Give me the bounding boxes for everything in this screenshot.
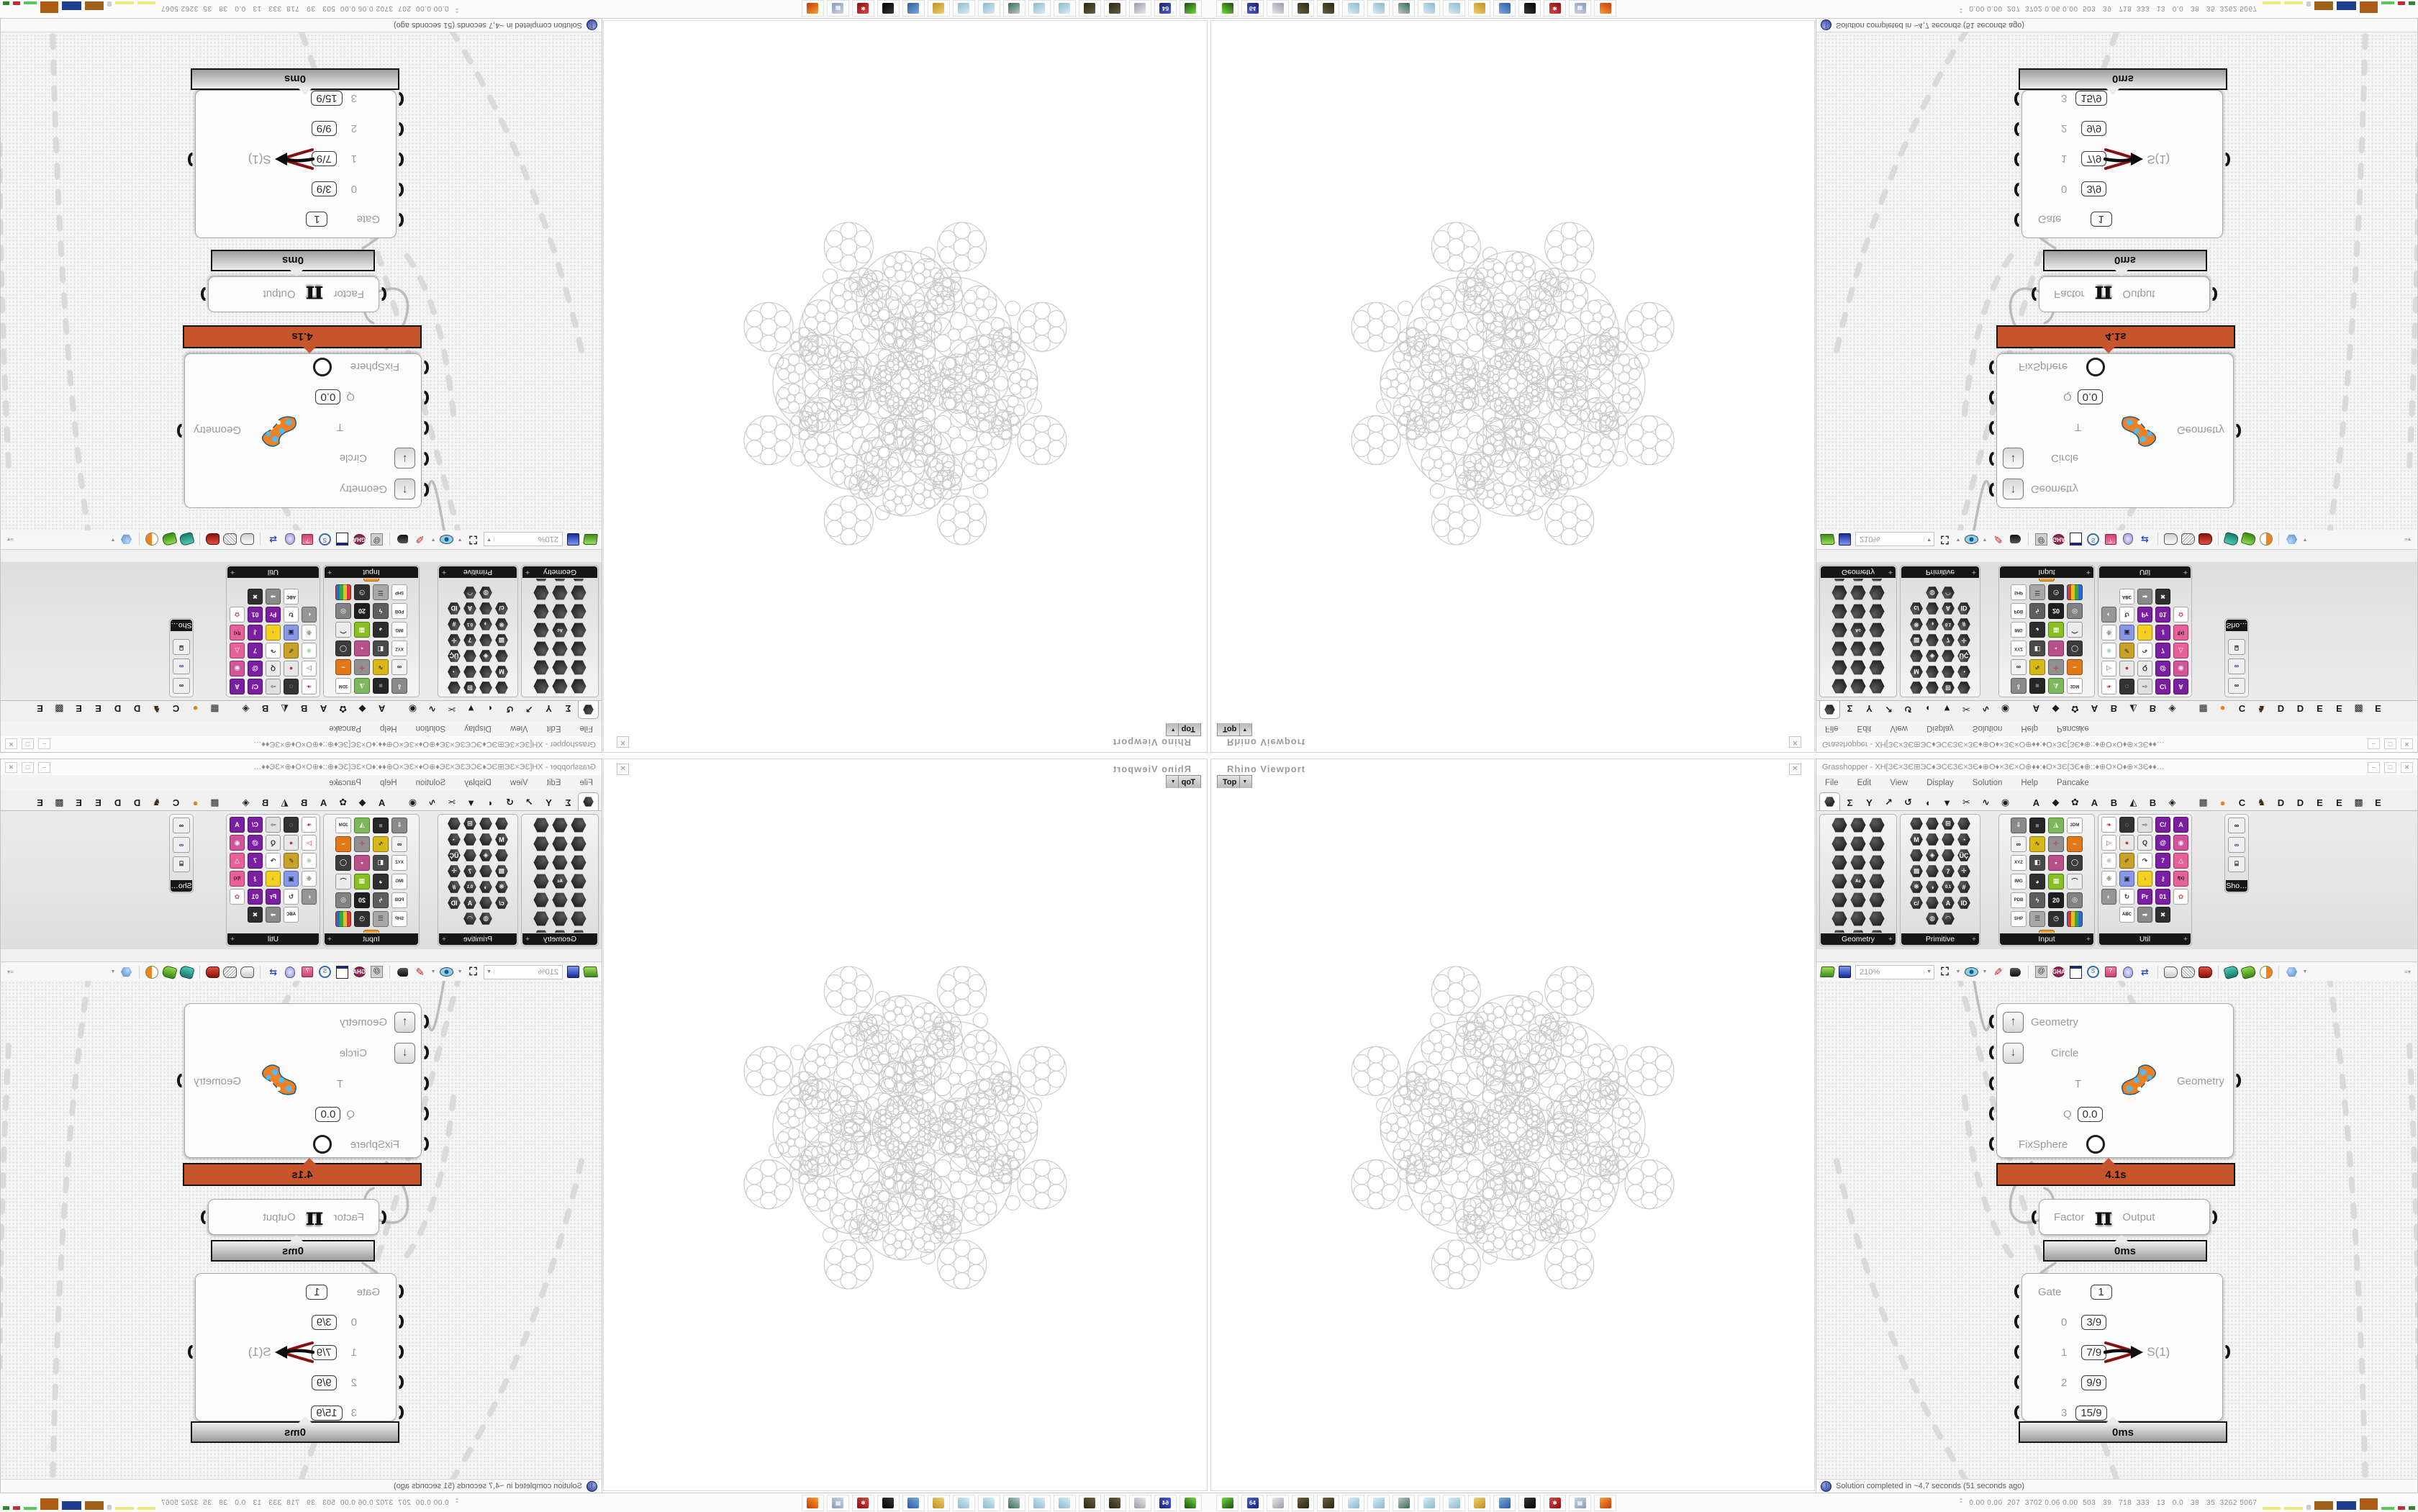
palette-icon[interactable]: ϟ	[372, 602, 390, 620]
palette-icon[interactable]	[1831, 835, 1849, 853]
chevron-down-icon[interactable]: ▼	[484, 969, 494, 974]
gh-category-tab[interactable]: ✿	[333, 701, 353, 717]
palette-icon[interactable]: ÜÇ	[447, 848, 462, 863]
palette-icon[interactable]: ✛	[447, 864, 462, 879]
chevron-down-icon[interactable]: ▼	[1955, 533, 1961, 546]
palette-icon[interactable]: •	[2047, 640, 2065, 658]
pi-node[interactable]: Factor π Output	[2039, 1199, 2210, 1235]
palette-icon[interactable]: ▷	[2101, 834, 2118, 851]
camera-button[interactable]	[396, 965, 409, 979]
taskbar-app-icon[interactable]	[1003, 1495, 1025, 1511]
gh-category-tab[interactable]: ◭	[275, 795, 294, 810]
palette-icon[interactable]: ✛	[447, 633, 462, 648]
stream-gate-node[interactable]: Gate 1 0 3/9 1 7/9	[2021, 90, 2223, 238]
chevron-down-icon[interactable]: ▼	[1169, 723, 1179, 735]
gate-input-port[interactable]	[2014, 213, 2023, 227]
input-port-geometry[interactable]	[1989, 483, 1998, 497]
palette-icon[interactable]: ■	[372, 677, 390, 695]
viewport-canvas[interactable]	[604, 22, 1206, 723]
gh-category-tab[interactable]: E	[89, 701, 108, 717]
palette-icon[interactable]	[551, 854, 569, 872]
gate-input-port[interactable]	[2014, 1285, 2023, 1298]
gh-category-tab[interactable]: ●	[186, 701, 205, 717]
up-arrow-button[interactable]: ↑	[2003, 1012, 2024, 1033]
palette-icon[interactable]: ◎	[335, 891, 353, 909]
palette-icon[interactable]	[570, 621, 588, 639]
palette-icon[interactable]: ▦	[353, 872, 371, 890]
palette-icon[interactable]: ϟ	[2029, 602, 2047, 620]
palette-icon[interactable]	[551, 579, 569, 583]
palette-icon[interactable]	[570, 835, 588, 853]
palette-icon[interactable]	[447, 816, 462, 831]
palette-icon[interactable]: 20	[353, 891, 371, 909]
taskbar-app-icon[interactable]: 64	[1241, 0, 1264, 17]
palette-icon[interactable]: f(x)	[229, 870, 246, 887]
palette-icon[interactable]: ◧	[372, 854, 390, 872]
palette-icon[interactable]: M	[1909, 832, 1924, 847]
sketch-pen-button[interactable]: ✎	[1991, 533, 2005, 546]
palette-icon[interactable]: 0.1	[1941, 879, 1956, 895]
output-port-geometry[interactable]	[177, 424, 186, 438]
palette-icon[interactable]: ⊞	[463, 680, 478, 695]
menu-item-file[interactable]: File	[1825, 725, 1839, 733]
gate-input-port[interactable]	[2014, 122, 2023, 136]
gh-category-tab[interactable]: ◭	[2124, 701, 2143, 717]
display-shaded-red-button[interactable]	[206, 533, 219, 546]
palette-icon[interactable]: •	[353, 854, 371, 872]
input-port-t[interactable]	[420, 1077, 429, 1090]
chevron-down-icon[interactable]: ▼	[110, 533, 116, 546]
zoom-extents-button[interactable]: ⛶	[466, 965, 480, 979]
gh-category-tab[interactable]: D	[2291, 795, 2310, 810]
taskbar-app-icon[interactable]	[1493, 0, 1516, 17]
gh-category-tab[interactable]: Y	[1860, 795, 1879, 810]
minimize-button[interactable]: –	[2368, 762, 2380, 773]
taskbar-app-icon[interactable]: ✱	[1544, 1495, 1566, 1511]
display-wireframe-button[interactable]	[2181, 965, 2195, 979]
palette-icon[interactable]: M	[1909, 664, 1924, 679]
palette-icon[interactable]: 7	[2155, 852, 2172, 869]
palette-icon[interactable]: C/	[2155, 816, 2172, 833]
hints-bulb-button[interactable]	[2121, 533, 2134, 546]
menu-item-display[interactable]: Display	[464, 779, 492, 787]
minimize-button[interactable]: –	[38, 762, 50, 773]
taskbar-app-icon[interactable]	[802, 1495, 824, 1511]
collapse-toolbar-icon[interactable]: ≡▾	[4, 533, 17, 546]
stream-gate-node[interactable]: Gate 1 0 3/9 1 7/9	[2021, 1273, 2223, 1421]
palette-icon[interactable]: ▩	[494, 864, 510, 879]
new-window-button[interactable]	[2069, 965, 2083, 979]
gh-category-tab[interactable]: ◈	[2163, 701, 2182, 717]
gh-canvas[interactable]: ↑ Geometry ↓ Circle T Q	[1816, 981, 2417, 1480]
find-component-button[interactable]: S	[2086, 533, 2100, 546]
input-port-fixsphere[interactable]	[1989, 1137, 1998, 1151]
palette-icon[interactable]: ◑	[479, 617, 494, 632]
gh-category-tab[interactable]: D	[2291, 701, 2310, 717]
palette-icon[interactable]: A	[463, 601, 478, 616]
palette-icon[interactable]: 7	[2155, 642, 2172, 659]
kangaroo-solver-node[interactable]: ↑ Geometry ↓ Circle T Q	[1996, 1003, 2234, 1158]
gh-category-tab[interactable]: Σ	[1840, 701, 1860, 717]
gh-category-tab[interactable]: E	[30, 795, 50, 810]
gh-category-tab[interactable]	[578, 701, 599, 719]
palette-icon[interactable]	[1925, 816, 1940, 831]
sketch-pen-button[interactable]: ✎	[413, 533, 427, 546]
palette-icon[interactable]: ᴬᶜ	[551, 872, 569, 890]
taskbar-app-icon[interactable]: ▦	[827, 0, 849, 17]
palette-icon[interactable]: f(x)	[2173, 870, 2190, 887]
zoom-extents-button[interactable]: ⛶	[1938, 965, 1952, 979]
gate-input-port[interactable]	[2014, 1315, 2023, 1328]
gh-category-tab[interactable]: ●	[2213, 795, 2232, 810]
palette-icon[interactable]: XYZ	[2010, 854, 2028, 872]
palette-icon[interactable]: ✖	[247, 588, 264, 605]
collapse-toolbar-icon[interactable]: ≡▾	[2401, 965, 2414, 979]
gate-value-box[interactable]: 3/9	[2081, 1315, 2106, 1330]
gh-category-tab[interactable]: ▼	[1937, 795, 1957, 810]
collapse-toolbar-icon[interactable]: ≡▾	[4, 965, 17, 979]
taskbar-app-icon[interactable]: 64	[1154, 1495, 1177, 1511]
palette-icon[interactable]	[533, 658, 551, 676]
gh-category-tab[interactable]: ∿	[1976, 701, 1996, 717]
palette-icon[interactable]: ◐	[2101, 606, 2118, 623]
palette-icon[interactable]	[1941, 848, 1956, 863]
display-green-button[interactable]	[2242, 965, 2255, 979]
display-green-button[interactable]	[2242, 533, 2255, 546]
palette-icon[interactable]	[533, 816, 551, 834]
gh-category-tab[interactable]: Y	[539, 795, 558, 810]
gate-output-port[interactable]	[188, 1345, 196, 1359]
gh-category-tab[interactable]: ▩	[50, 795, 69, 810]
palette-icon[interactable]	[1831, 584, 1849, 602]
palette-icon[interactable]: A	[1941, 601, 1956, 616]
palette-icon[interactable]: 7	[463, 864, 478, 879]
palette-icon[interactable]: ◧	[372, 640, 390, 658]
palette-icon[interactable]	[533, 910, 551, 928]
palette-icon[interactable]: ■	[2029, 816, 2047, 834]
palette-icon[interactable]	[570, 910, 588, 928]
taskbar-app-icon[interactable]	[802, 0, 824, 17]
palette-icon[interactable]: ABC	[283, 588, 300, 605]
palette-icon[interactable]: ✿	[229, 606, 246, 623]
gate-value-box[interactable]: 9/9	[312, 1375, 337, 1390]
gh-category-tab[interactable]: E	[2329, 701, 2349, 717]
gh-category-tab[interactable]: ▩	[2349, 795, 2368, 810]
hints-bulb-button[interactable]	[2121, 965, 2134, 979]
open-file-button[interactable]	[1821, 533, 1834, 546]
palette-icon[interactable]	[533, 640, 551, 658]
palette-icon[interactable]: ⚛	[2101, 642, 2118, 659]
palette-icon[interactable]	[551, 602, 569, 620]
palette-icon[interactable]: ↷	[2137, 852, 2154, 869]
gate-output-port[interactable]	[2222, 153, 2230, 166]
gh-category-tab[interactable]	[1819, 701, 1840, 719]
gh-category-tab[interactable]: C	[2232, 795, 2252, 810]
palette-icon[interactable]: ❋	[1909, 617, 1924, 632]
gh-category-tab[interactable]: ♞	[147, 795, 166, 810]
taskbar-app-icon[interactable]: ✱	[852, 1495, 874, 1511]
palette-icon[interactable]: ∿	[372, 658, 390, 676]
palette-icon[interactable]: @	[247, 660, 264, 677]
menu-item-display[interactable]: Display	[1926, 725, 1954, 733]
chevron-down-icon[interactable]: ▼	[2302, 965, 2308, 979]
palette-icon[interactable]: ➡	[265, 588, 282, 605]
gate-value-box[interactable]: 9/9	[2081, 122, 2106, 137]
palette-icon[interactable]: ➡	[2137, 906, 2154, 923]
palette-icon[interactable]: ⌸	[172, 638, 191, 656]
new-window-button[interactable]	[335, 533, 349, 546]
palette-icon[interactable]: C/	[247, 678, 264, 695]
palette-icon[interactable]	[1909, 680, 1924, 695]
palette-icon[interactable]	[551, 584, 569, 602]
pi-output-port[interactable]	[2209, 1210, 2217, 1224]
palette-icon[interactable]: ⌒	[2066, 872, 2084, 890]
palette-icon[interactable]: ∞	[2010, 658, 2028, 676]
palette-icon[interactable]: ⇩	[391, 816, 409, 834]
gh-category-tab[interactable]: D	[127, 795, 147, 810]
taskbar-app-icon[interactable]	[1104, 0, 1126, 17]
gh-category-tab[interactable]: ◭	[275, 701, 294, 717]
palette-icon[interactable]: ~	[2066, 835, 2084, 853]
palette-icon[interactable]: ▣	[283, 870, 300, 887]
palette-icon[interactable]: 20	[353, 602, 371, 620]
gate-value-box[interactable]: 3/9	[312, 1315, 337, 1330]
chevron-down-icon[interactable]: ▼	[110, 965, 116, 979]
palette-icon[interactable]	[551, 910, 569, 928]
palette-icon[interactable]: ◖	[2137, 870, 2154, 887]
taskbar-app-icon[interactable]	[1028, 1495, 1051, 1511]
minimize-button[interactable]: –	[2368, 738, 2380, 749]
viewport-canvas[interactable]	[604, 788, 1206, 1490]
palette-icon[interactable]	[570, 872, 588, 890]
palette-icon[interactable]	[533, 602, 551, 620]
palette-icon[interactable]: ⌒	[335, 872, 353, 890]
palette-icon[interactable]: ◠	[1941, 585, 1956, 600]
zoom-level-input[interactable]: 210%▼	[1855, 965, 1934, 979]
gh-category-tab[interactable]: A	[314, 701, 333, 717]
gate-value-box[interactable]: 15/9	[2075, 91, 2106, 107]
input-port-fixsphere[interactable]	[420, 361, 429, 374]
internet-button[interactable]: @	[370, 965, 384, 979]
palette-icon[interactable]	[1925, 864, 1940, 879]
palette-icon[interactable]: ▷	[301, 834, 318, 851]
taskbar-app-icon[interactable]: 64	[1154, 0, 1177, 17]
gha-installer-button[interactable]: GHA	[2052, 533, 2065, 546]
menu-item-help[interactable]: Help	[2021, 725, 2038, 733]
pi-node[interactable]: Factor π Output	[2039, 276, 2210, 312]
viewport-close-button[interactable]: ✕	[1789, 736, 1801, 748]
menu-item-display[interactable]: Display	[1926, 779, 1954, 787]
palette-icon[interactable]: ÜÇ	[447, 648, 462, 664]
preview-eye-button[interactable]	[440, 533, 453, 546]
palette-icon[interactable]: ⇨	[265, 678, 282, 695]
gh-category-tab[interactable]: Σ	[558, 795, 578, 810]
gh-category-tab[interactable]: ◈	[236, 795, 255, 810]
palette-icon[interactable]	[494, 680, 510, 695]
internet-button[interactable]: @	[2034, 533, 2048, 546]
palette-icon[interactable]	[1868, 835, 1886, 853]
gh-category-tab[interactable]: A	[314, 795, 333, 810]
palette-icon[interactable]: ABC	[283, 906, 300, 923]
palette-icon[interactable]: c/	[494, 601, 510, 616]
palette-icon[interactable]: ⌸	[172, 855, 191, 874]
gh-category-tab[interactable]: B	[294, 795, 314, 810]
package-manager-button[interactable]: ?	[301, 533, 314, 546]
gh-category-tab[interactable]: ♞	[2252, 701, 2271, 717]
palette-icon[interactable]	[479, 680, 494, 695]
palette-icon[interactable]: 0.1	[463, 879, 478, 895]
preview-eye-button[interactable]	[440, 965, 453, 979]
minimize-button[interactable]: –	[38, 738, 50, 749]
gh-category-tab[interactable]: E	[2368, 701, 2388, 717]
palette-icon[interactable]	[1925, 633, 1940, 648]
gate-input-port[interactable]	[395, 1375, 404, 1389]
menu-item-edit[interactable]: Edit	[1857, 779, 1872, 787]
palette-icon[interactable]: ▦	[2047, 872, 2065, 890]
palette-icon[interactable]: ✿	[2173, 888, 2190, 905]
gate-output-port[interactable]	[188, 153, 196, 166]
input-port-q[interactable]	[1989, 1107, 1998, 1121]
palette-icon[interactable]: ◷	[353, 910, 371, 928]
palette-icon[interactable]: ◔	[1957, 832, 1972, 847]
palette-icon[interactable]: △	[2173, 642, 2190, 659]
taskbar-app-icon[interactable]	[1594, 1495, 1616, 1511]
gha-installer-button[interactable]: GHA	[353, 965, 366, 979]
palette-icon[interactable]: ⚷	[2155, 624, 2172, 641]
palette-icon[interactable]: ◈	[479, 848, 494, 863]
q-value-box[interactable]: 0.0	[315, 1107, 340, 1122]
palette-icon[interactable]: ◔	[447, 664, 462, 679]
palette-icon[interactable]: ◎	[2066, 602, 2084, 620]
palette-icon[interactable]: A	[1941, 895, 1956, 910]
palette-icon[interactable]: XYZ	[391, 640, 409, 658]
palette-icon[interactable]: ⇩	[391, 677, 409, 695]
palette-icon[interactable]: f(x)	[2173, 624, 2190, 641]
gate-input-port[interactable]	[2014, 1345, 2023, 1359]
palette-icon[interactable]: ∞	[391, 658, 409, 676]
palette-icon[interactable]: ⚷	[247, 870, 264, 887]
gh-category-tab[interactable]: ▩	[2349, 701, 2368, 717]
exchange-arrows-button[interactable]: ⇄	[266, 533, 280, 546]
stream-gate-node[interactable]: Gate 1 0 3/9 1 7/9	[195, 90, 397, 238]
gate-input-port[interactable]	[2014, 153, 2023, 166]
down-arrow-button[interactable]: ↓	[2003, 1043, 2024, 1064]
palette-icon[interactable]: ◧	[2029, 640, 2047, 658]
taskbar-app-icon[interactable]	[1594, 0, 1616, 17]
palette-icon[interactable]: ◍	[479, 911, 494, 926]
palette-icon[interactable]: 7	[247, 642, 264, 659]
palette-icon[interactable]	[1849, 816, 1867, 834]
chevron-down-icon[interactable]: ▼	[1982, 533, 1988, 546]
palette-icon[interactable]: ◍	[1925, 585, 1940, 600]
palette-icon[interactable]: ●	[283, 660, 300, 677]
palette-icon[interactable]: •	[353, 640, 371, 658]
palette-icon[interactable]: 20	[2047, 891, 2065, 909]
palette-icon[interactable]: ◔	[447, 832, 462, 847]
gate-input-port[interactable]	[2014, 1405, 2023, 1419]
palette-icon[interactable]: 01	[2155, 888, 2172, 905]
palette-icon[interactable]: ◌	[2119, 816, 2136, 833]
stream-gate-node[interactable]: Gate 1 0 3/9 1 7/9	[195, 1273, 397, 1421]
palette-icon[interactable]: ID	[1957, 895, 1972, 910]
gh-category-tab[interactable]: ◭	[2124, 795, 2143, 810]
taskbar-app-icon[interactable]	[953, 0, 975, 17]
palette-icon[interactable]	[1925, 832, 1940, 847]
palette-icon[interactable]: SHP	[391, 584, 409, 602]
palette-icon[interactable]: ✛	[1957, 864, 1972, 879]
taskbar-app-icon[interactable]	[1367, 0, 1390, 17]
palette-icon[interactable]: ◯	[335, 640, 353, 658]
gate-value-box[interactable]: 1	[306, 1285, 327, 1300]
palette-icon[interactable]: ⇨	[2137, 816, 2154, 833]
palette-icon[interactable]: 3DM	[2066, 816, 2084, 834]
save-button[interactable]	[566, 965, 580, 979]
gh-category-tab[interactable]: D	[2271, 701, 2291, 717]
display-wire-shaded-button[interactable]	[240, 965, 254, 979]
palette-icon[interactable]: ◉	[2173, 660, 2190, 677]
camera-button[interactable]	[2009, 533, 2022, 546]
palette-icon[interactable]: ↷	[265, 642, 282, 659]
gh-category-tab[interactable]: A	[2027, 701, 2046, 717]
palette-icon[interactable]: ◐	[301, 888, 318, 905]
palette-icon[interactable]: ✐	[2119, 642, 2136, 659]
palette-icon[interactable]: ∞	[172, 676, 191, 695]
exchange-arrows-button[interactable]: ⇄	[2138, 533, 2152, 546]
q-value-box[interactable]: 0.0	[2078, 1107, 2103, 1122]
gh-category-tab[interactable]: ◖	[1918, 795, 1937, 810]
palette-icon[interactable]: ✿	[229, 888, 246, 905]
input-port-fixsphere[interactable]	[420, 1137, 429, 1151]
palette-icon[interactable]: #	[447, 617, 462, 632]
gh-category-tab[interactable]: ✂	[442, 701, 461, 717]
gh-category-tab[interactable]: ◈	[2163, 795, 2182, 810]
gh-canvas[interactable]: ↑ Geometry ↓ Circle T Q	[1, 32, 602, 530]
gate-value-box[interactable]: 9/9	[312, 122, 337, 137]
display-shaded-red-button[interactable]	[2199, 965, 2212, 979]
palette-icon[interactable]: ❈	[301, 870, 318, 887]
gh-category-tab[interactable]: E	[89, 795, 108, 810]
input-port-circle[interactable]	[420, 1046, 429, 1059]
palette-icon[interactable]: ⇩	[2010, 677, 2028, 695]
palette-icon[interactable]	[2066, 584, 2084, 602]
palette-icon[interactable]: ◯	[2066, 854, 2084, 872]
input-port-q[interactable]	[420, 391, 429, 404]
fixsphere-radio[interactable]	[2086, 358, 2105, 376]
palette-icon[interactable]: 0.1	[463, 617, 478, 632]
palette-icon[interactable]	[1868, 910, 1886, 928]
palette-icon[interactable]	[551, 891, 569, 909]
palette-icon[interactable]	[1831, 658, 1849, 676]
palette-icon[interactable]: 7	[247, 852, 264, 869]
chevron-down-icon[interactable]: ▼	[457, 533, 463, 546]
palette-icon[interactable]: ▣	[2119, 624, 2136, 641]
chevron-down-icon[interactable]: ▼	[1982, 965, 1988, 979]
palette-icon[interactable]	[1831, 677, 1849, 695]
palette-icon[interactable]	[551, 816, 569, 834]
display-green-button[interactable]	[163, 965, 176, 979]
palette-icon[interactable]: ✐	[283, 642, 300, 659]
palette-icon[interactable]	[479, 633, 494, 648]
pi-input-port[interactable]	[378, 1210, 386, 1224]
palette-icon[interactable]: ⊞	[1941, 680, 1956, 695]
palette-icon[interactable]	[1868, 854, 1886, 872]
palette-icon[interactable]: 7	[463, 633, 478, 648]
palette-icon[interactable]	[1868, 872, 1886, 890]
preview-eye-button[interactable]	[1965, 965, 1978, 979]
gate-value-box[interactable]: 15/9	[2075, 1405, 2106, 1421]
palette-icon[interactable]	[479, 895, 494, 910]
up-arrow-button[interactable]: ↑	[2003, 479, 2024, 500]
